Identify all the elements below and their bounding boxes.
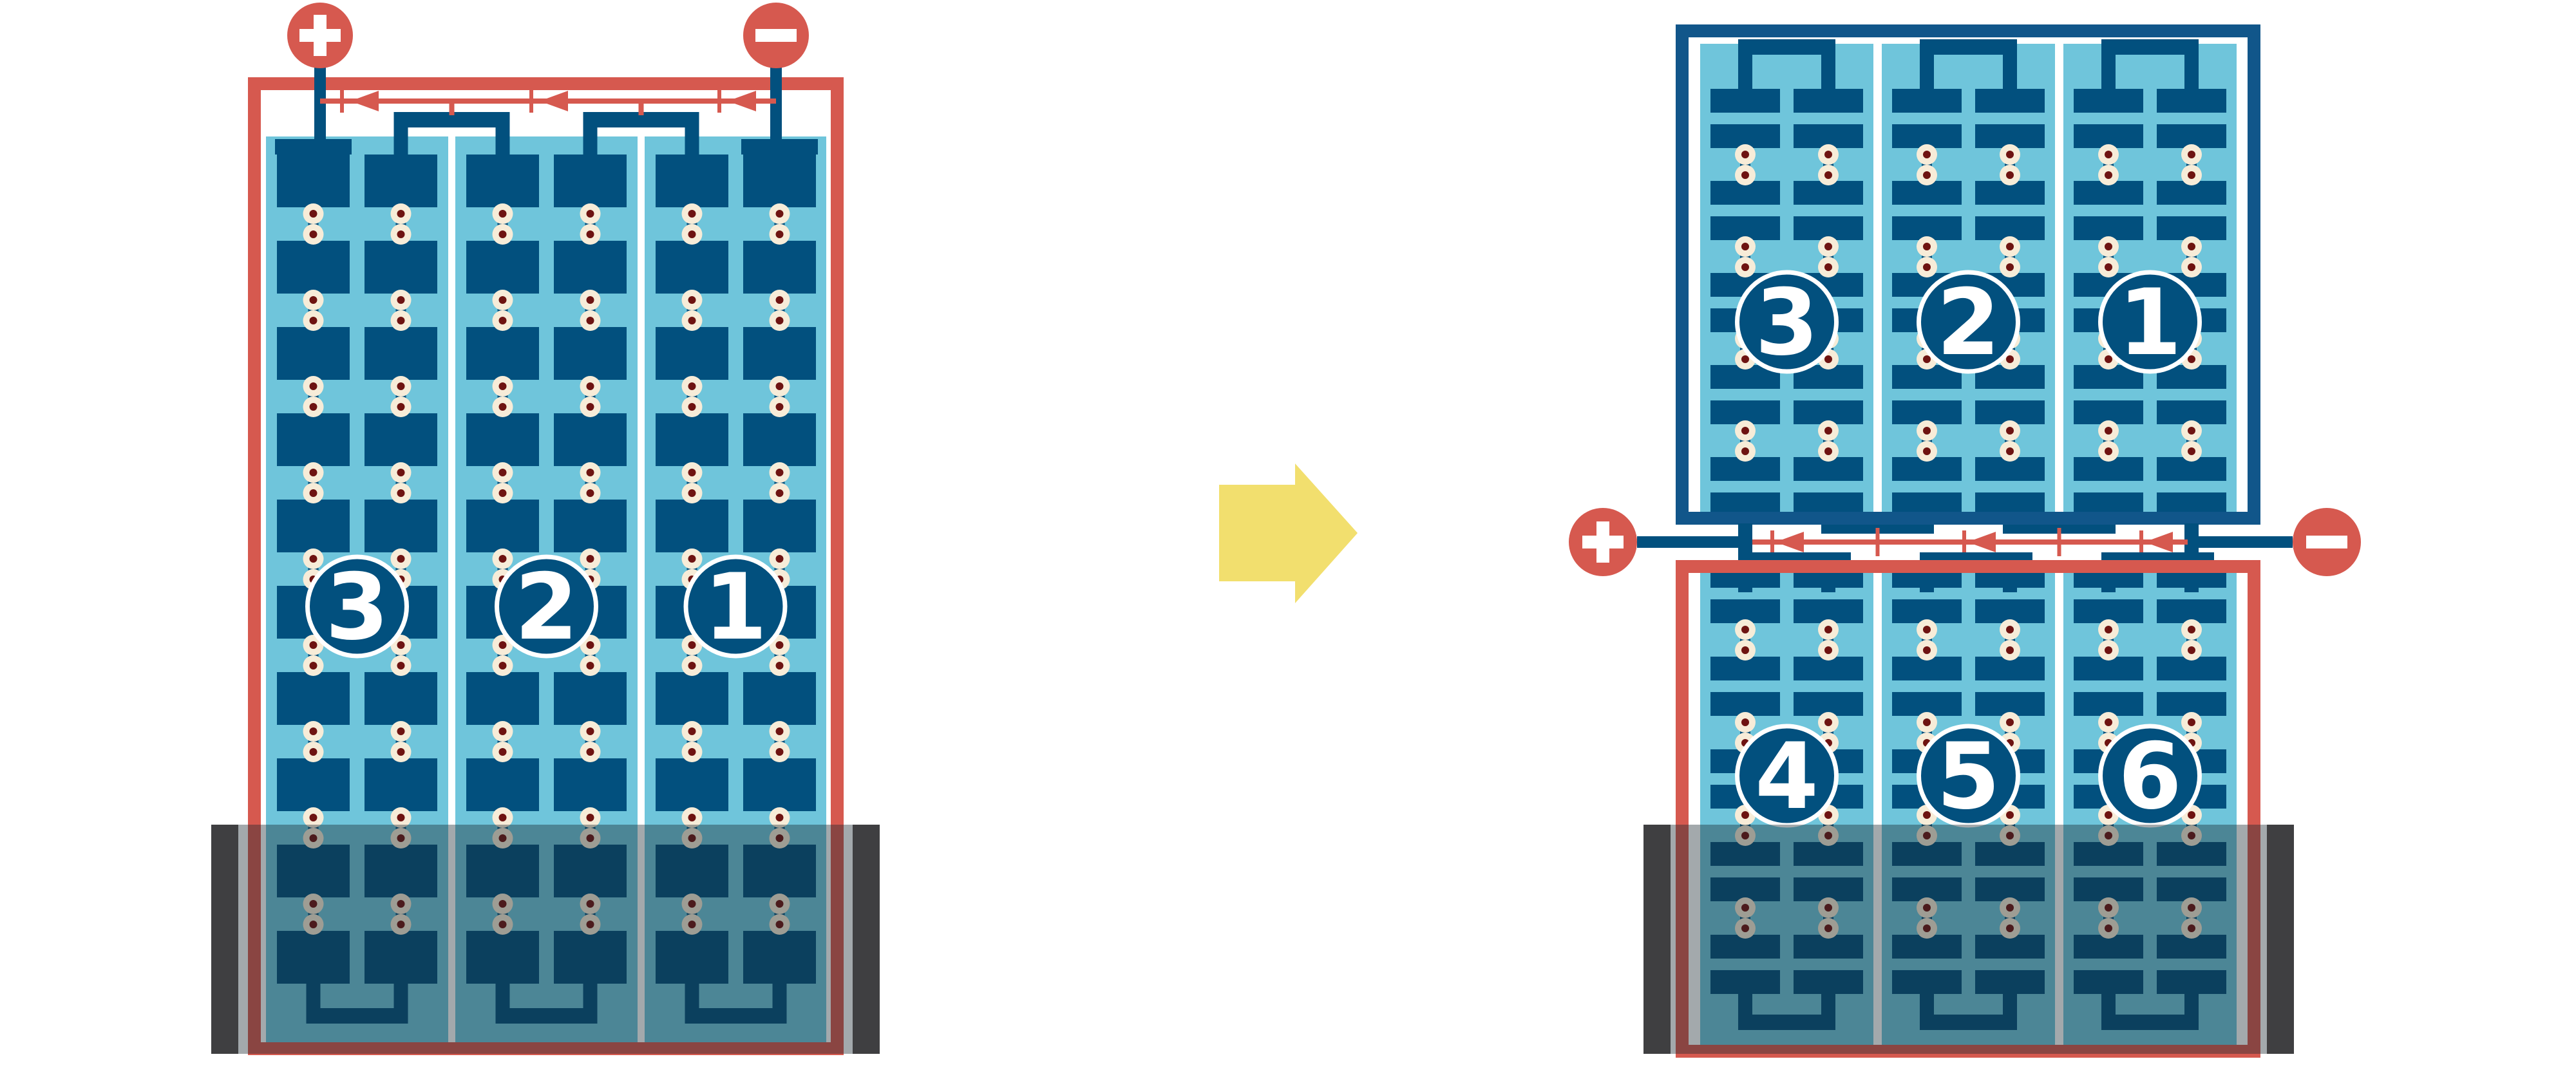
- rivet-dot: [1923, 447, 1931, 455]
- arrow-head: [540, 91, 568, 111]
- rivet-dot: [1824, 263, 1832, 271]
- rivet-dot: [587, 296, 594, 304]
- rivet-dot: [2188, 171, 2195, 179]
- plate: [466, 672, 539, 725]
- plate: [554, 327, 627, 380]
- rivet-dot: [776, 469, 784, 476]
- rivet-dot: [1741, 263, 1749, 271]
- cell-number-badge: 3: [1738, 270, 1837, 376]
- tank-clamp-bar: [853, 825, 880, 1054]
- arrow-head: [728, 91, 756, 111]
- bridge-bar: [2101, 39, 2199, 55]
- rivet-dot: [2188, 626, 2195, 633]
- rivet-dot: [499, 641, 507, 649]
- rivet-dot: [310, 814, 317, 821]
- rivet-dot: [397, 662, 405, 670]
- rivet-dot: [587, 727, 594, 735]
- terminal-minus-icon: [2306, 536, 2347, 548]
- rivet-dot: [776, 403, 784, 411]
- battery-before: 321: [211, 3, 880, 1054]
- current-wire: [1752, 528, 2188, 556]
- cell-number-badge: 3: [308, 554, 407, 660]
- rivet-dot: [2188, 811, 2195, 819]
- rivet-dot: [688, 555, 696, 563]
- rivet-dot: [776, 727, 784, 735]
- plate: [1710, 89, 1780, 113]
- rivet-dot: [2006, 811, 2014, 819]
- rivet-dot: [587, 317, 594, 324]
- rivet-dot: [776, 641, 784, 649]
- plate: [554, 672, 627, 725]
- rivet-dot: [1923, 646, 1931, 654]
- plate: [466, 241, 539, 294]
- electrolyte-overlay: [1643, 825, 2294, 1054]
- plate: [2157, 89, 2226, 113]
- plate: [466, 500, 539, 552]
- rivet-dot: [2006, 151, 2014, 158]
- rivet-dot: [397, 317, 405, 324]
- rivet-dot: [310, 230, 317, 238]
- rivet-dot: [310, 382, 317, 390]
- plate: [743, 758, 816, 811]
- plate: [1892, 492, 1962, 512]
- rivet-dot: [2188, 355, 2195, 363]
- rivet-dot: [1824, 626, 1832, 633]
- rivet-dot: [499, 748, 507, 756]
- rivet-dot: [2006, 243, 2014, 250]
- arrow-head: [2145, 532, 2173, 552]
- rivet-dot: [1923, 811, 1931, 819]
- cell-number-badge: 6: [2101, 724, 2200, 830]
- terminal-plate-cap: [741, 139, 818, 155]
- plate: [365, 500, 437, 552]
- cell-number-badge: 1: [2101, 270, 2200, 376]
- plate: [277, 155, 350, 207]
- terminal-positive: [287, 3, 353, 68]
- bridge-leg: [1738, 55, 1752, 93]
- plate: [554, 241, 627, 294]
- plate: [2074, 89, 2143, 113]
- tab-bar: [2101, 552, 2214, 561]
- cell-number-badge: 2: [497, 554, 596, 660]
- rivet-dot: [310, 296, 317, 304]
- rivet-dot: [499, 210, 507, 218]
- tab-bar: [1738, 552, 1851, 561]
- rivet-dot: [587, 662, 594, 670]
- electrolyte-overlay: [211, 825, 880, 1054]
- rivet-dot: [310, 210, 317, 218]
- cell-number-label: 2: [1937, 270, 2000, 376]
- rivet-dot: [397, 382, 405, 390]
- rivet-dot: [499, 727, 507, 735]
- wire-drop: [639, 101, 644, 115]
- battery-after-top: 321: [1682, 31, 2254, 561]
- rivet-dot: [2105, 447, 2112, 455]
- cell-number-label: 4: [1755, 724, 1819, 830]
- rivet-dot: [397, 296, 405, 304]
- rivet-dot: [688, 748, 696, 756]
- rivet-dot: [499, 814, 507, 821]
- rivet-dot: [397, 403, 405, 411]
- plate: [554, 758, 627, 811]
- cell-number-badge: 2: [1919, 270, 2018, 376]
- rivet-dot: [776, 555, 784, 563]
- rivet-dot: [688, 641, 696, 649]
- rivet-dot: [688, 296, 696, 304]
- rivet-dot: [397, 814, 405, 821]
- rivet-dot: [1923, 151, 1931, 158]
- plate: [2074, 492, 2143, 512]
- rivet-dot: [1824, 447, 1832, 455]
- terminal-positive: [1569, 508, 1637, 576]
- rivet-dot: [2006, 171, 2014, 179]
- rivet-dot: [2105, 811, 2112, 819]
- rivet-dot: [397, 210, 405, 218]
- rivet-dot: [310, 489, 317, 497]
- plate: [466, 758, 539, 811]
- rivet-dot: [1741, 243, 1749, 250]
- terminal-negative: [743, 3, 809, 68]
- rivet-dot: [587, 230, 594, 238]
- rivet-dot: [397, 469, 405, 476]
- wire-cross-tick: [2058, 528, 2061, 556]
- rivet-dot: [1923, 243, 1931, 250]
- rivet-dot: [688, 317, 696, 324]
- plate: [656, 500, 728, 552]
- rivet-dot: [1741, 718, 1749, 726]
- rivet-dot: [2188, 263, 2195, 271]
- rivet-dot: [1741, 355, 1749, 363]
- arrow-tick: [340, 89, 344, 113]
- plate: [656, 155, 728, 207]
- battery-reconfiguration-diagram: 321321456: [0, 0, 2576, 1068]
- plate: [277, 758, 350, 811]
- cell-number-label: 6: [2118, 724, 2182, 830]
- plate: [277, 500, 350, 552]
- rivet-dot: [2188, 427, 2195, 435]
- plate: [554, 500, 627, 552]
- rivet-dot: [499, 469, 507, 476]
- rivet-dot: [1741, 811, 1749, 819]
- plate: [554, 413, 627, 466]
- tank-clamp-bar: [2267, 825, 2294, 1054]
- rivet-dot: [2006, 718, 2014, 726]
- arrow-tick: [2139, 530, 2143, 554]
- rivet-dot: [1824, 646, 1832, 654]
- rivet-dot: [587, 748, 594, 756]
- transform-arrow-icon: [1219, 464, 1358, 603]
- rivet-dot: [499, 662, 507, 670]
- rivet-dot: [1923, 171, 1931, 179]
- rivet-dot: [2006, 355, 2014, 363]
- rivet-dot: [1741, 447, 1749, 455]
- rivet-dot: [688, 403, 696, 411]
- rivet-dot: [1824, 811, 1832, 819]
- rivet-dot: [587, 555, 594, 563]
- rivet-dot: [587, 210, 594, 218]
- current-wire: [320, 89, 776, 115]
- plus-bar-v: [314, 15, 327, 56]
- tank-clamp-bar: [1643, 825, 1671, 1054]
- rivet-dot: [310, 555, 317, 563]
- rivet-dot: [2105, 646, 2112, 654]
- terminal-post: [2199, 536, 2293, 548]
- rivet-dot: [310, 641, 317, 649]
- rivet-dot: [776, 814, 784, 821]
- terminal-plate-cap: [275, 139, 352, 155]
- terminal-minus-icon: [755, 29, 797, 42]
- plate: [743, 413, 816, 466]
- rivet-dot: [1923, 427, 1931, 435]
- wire-drop: [450, 101, 455, 115]
- rivet-dot: [310, 662, 317, 670]
- rivet-dot: [587, 469, 594, 476]
- rivet-dot: [499, 230, 507, 238]
- plate: [365, 241, 437, 294]
- plate: [2157, 492, 2226, 512]
- rivet-dot: [397, 555, 405, 563]
- rivet-dot: [1824, 427, 1832, 435]
- rivet-dot: [688, 489, 696, 497]
- rivet-dot: [1923, 718, 1931, 726]
- bridge-leg: [2101, 55, 2116, 93]
- rivet-dot: [2006, 427, 2014, 435]
- plate: [554, 155, 627, 207]
- rivet-dot: [587, 403, 594, 411]
- rivet-dot: [776, 230, 784, 238]
- cell-number-label: 3: [1755, 270, 1819, 376]
- cell-number-label: 3: [325, 554, 389, 660]
- rivet-dot: [2105, 151, 2112, 158]
- rivet-dot: [310, 317, 317, 324]
- plate: [277, 327, 350, 380]
- terminal-negative: [2293, 508, 2361, 576]
- rivet-dot: [2188, 151, 2195, 158]
- rivet-dot: [499, 296, 507, 304]
- plate: [743, 241, 816, 294]
- rivet-dot: [587, 814, 594, 821]
- rivet-dot: [310, 403, 317, 411]
- rivet-dot: [397, 748, 405, 756]
- wire-cross-tick: [1876, 528, 1880, 556]
- rivet-dot: [2006, 646, 2014, 654]
- plate: [743, 500, 816, 552]
- bridge-leg: [2003, 55, 2017, 93]
- cell-number-badge: 5: [1919, 724, 2018, 830]
- plus-bar-v: [1596, 521, 1609, 563]
- cell-number-label: 1: [704, 554, 768, 660]
- rivet-dot: [310, 727, 317, 735]
- rivet-dot: [587, 382, 594, 390]
- rivet-dot: [688, 230, 696, 238]
- plate: [743, 672, 816, 725]
- plate: [656, 327, 728, 380]
- plate: [743, 327, 816, 380]
- rivet-dot: [2105, 263, 2112, 271]
- rivet-dot: [397, 230, 405, 238]
- rivet-dot: [776, 296, 784, 304]
- rivet-dot: [1741, 171, 1749, 179]
- plate: [277, 413, 350, 466]
- battery-after-assembly: 321456: [1569, 31, 2361, 1054]
- plate: [656, 672, 728, 725]
- bridge-leg: [1821, 55, 1835, 93]
- rivet-dot: [587, 641, 594, 649]
- plate: [1892, 89, 1962, 113]
- rivet-dot: [2188, 646, 2195, 654]
- rivet-dot: [688, 727, 696, 735]
- plate: [466, 413, 539, 466]
- bridge-bar: [1920, 39, 2017, 55]
- plate: [1794, 492, 1863, 512]
- rivet-dot: [1741, 427, 1749, 435]
- cell-number-label: 2: [515, 554, 578, 660]
- rivet-dot: [688, 382, 696, 390]
- rivet-dot: [397, 727, 405, 735]
- rivet-dot: [776, 317, 784, 324]
- rivet-dot: [1741, 151, 1749, 158]
- plate: [466, 327, 539, 380]
- plate: [277, 241, 350, 294]
- arrow-tick: [529, 89, 533, 113]
- rivet-dot: [2006, 447, 2014, 455]
- rivet-dot: [1741, 626, 1749, 633]
- arrow-tick: [717, 89, 721, 113]
- plate: [743, 155, 816, 207]
- plate: [656, 241, 728, 294]
- rivet-dot: [776, 489, 784, 497]
- bridge-leg: [2184, 55, 2199, 93]
- rivet-dot: [499, 489, 507, 497]
- rivet-dot: [2188, 447, 2195, 455]
- rivet-dot: [2105, 243, 2112, 250]
- tank-clamp-bar: [211, 825, 238, 1054]
- arrow-head: [350, 91, 379, 111]
- terminal-post: [1637, 536, 1739, 548]
- rivet-dot: [499, 555, 507, 563]
- rivet-dot: [310, 748, 317, 756]
- minus-bar: [755, 29, 797, 42]
- rivet-dot: [1824, 171, 1832, 179]
- arrow-tick: [1770, 530, 1774, 554]
- arrow-head: [1776, 532, 1804, 552]
- rivet-dot: [1923, 355, 1931, 363]
- plate: [466, 155, 539, 207]
- plate: [1794, 89, 1863, 113]
- rivet-dot: [1824, 243, 1832, 250]
- rivet-dot: [1923, 263, 1931, 271]
- cell-number-label: 1: [2118, 270, 2182, 376]
- minus-bar: [2306, 536, 2347, 548]
- rivet-dot: [2188, 718, 2195, 726]
- rivet-dot: [688, 662, 696, 670]
- rivet-dot: [310, 469, 317, 476]
- rivet-dot: [1923, 626, 1931, 633]
- rivet-dot: [688, 210, 696, 218]
- rivet-dot: [2006, 263, 2014, 271]
- arrow-tick: [1962, 530, 1966, 554]
- rivet-dot: [776, 382, 784, 390]
- plate: [365, 672, 437, 725]
- rivet-dot: [2105, 626, 2112, 633]
- cell-number-badge: 4: [1738, 724, 1837, 830]
- rivet-dot: [1824, 718, 1832, 726]
- rivet-dot: [397, 641, 405, 649]
- rivet-dot: [2188, 243, 2195, 250]
- rivet-dot: [397, 489, 405, 497]
- rivet-dot: [499, 403, 507, 411]
- diagram-stage: 321321456: [0, 0, 2576, 1068]
- rivet-dot: [1741, 646, 1749, 654]
- cell-number-label: 5: [1937, 724, 2000, 830]
- rivet-dot: [2105, 427, 2112, 435]
- arrow-head: [1295, 464, 1358, 603]
- rivet-dot: [776, 662, 784, 670]
- bridge-bar: [1738, 39, 1835, 55]
- plate: [277, 672, 350, 725]
- battery-after-bottom: 456: [1643, 552, 2294, 1054]
- rivet-dot: [2105, 355, 2112, 363]
- rivet-dot: [499, 382, 507, 390]
- arrow-shaft: [1219, 485, 1295, 581]
- plate: [365, 413, 437, 466]
- cell-number-badge: 1: [686, 554, 785, 660]
- bridge-leg: [1920, 55, 1934, 93]
- rivet-dot: [2105, 718, 2112, 726]
- rivet-dot: [2105, 171, 2112, 179]
- plate: [656, 758, 728, 811]
- plate: [365, 758, 437, 811]
- rivet-dot: [2006, 626, 2014, 633]
- rivet-dot: [1824, 355, 1832, 363]
- rivet-dot: [688, 469, 696, 476]
- arrow-head: [1967, 532, 1996, 552]
- tab-bar: [1920, 552, 2032, 561]
- rivet-dot: [587, 489, 594, 497]
- rivet-dot: [499, 317, 507, 324]
- rivet-dot: [776, 748, 784, 756]
- plate: [365, 155, 437, 207]
- rivet-dot: [688, 814, 696, 821]
- rivet-dot: [776, 210, 784, 218]
- rivet-dot: [1824, 151, 1832, 158]
- plate: [365, 327, 437, 380]
- plate: [1975, 492, 2045, 512]
- plate: [1710, 492, 1780, 512]
- plate: [656, 413, 728, 466]
- plate: [1975, 89, 2045, 113]
